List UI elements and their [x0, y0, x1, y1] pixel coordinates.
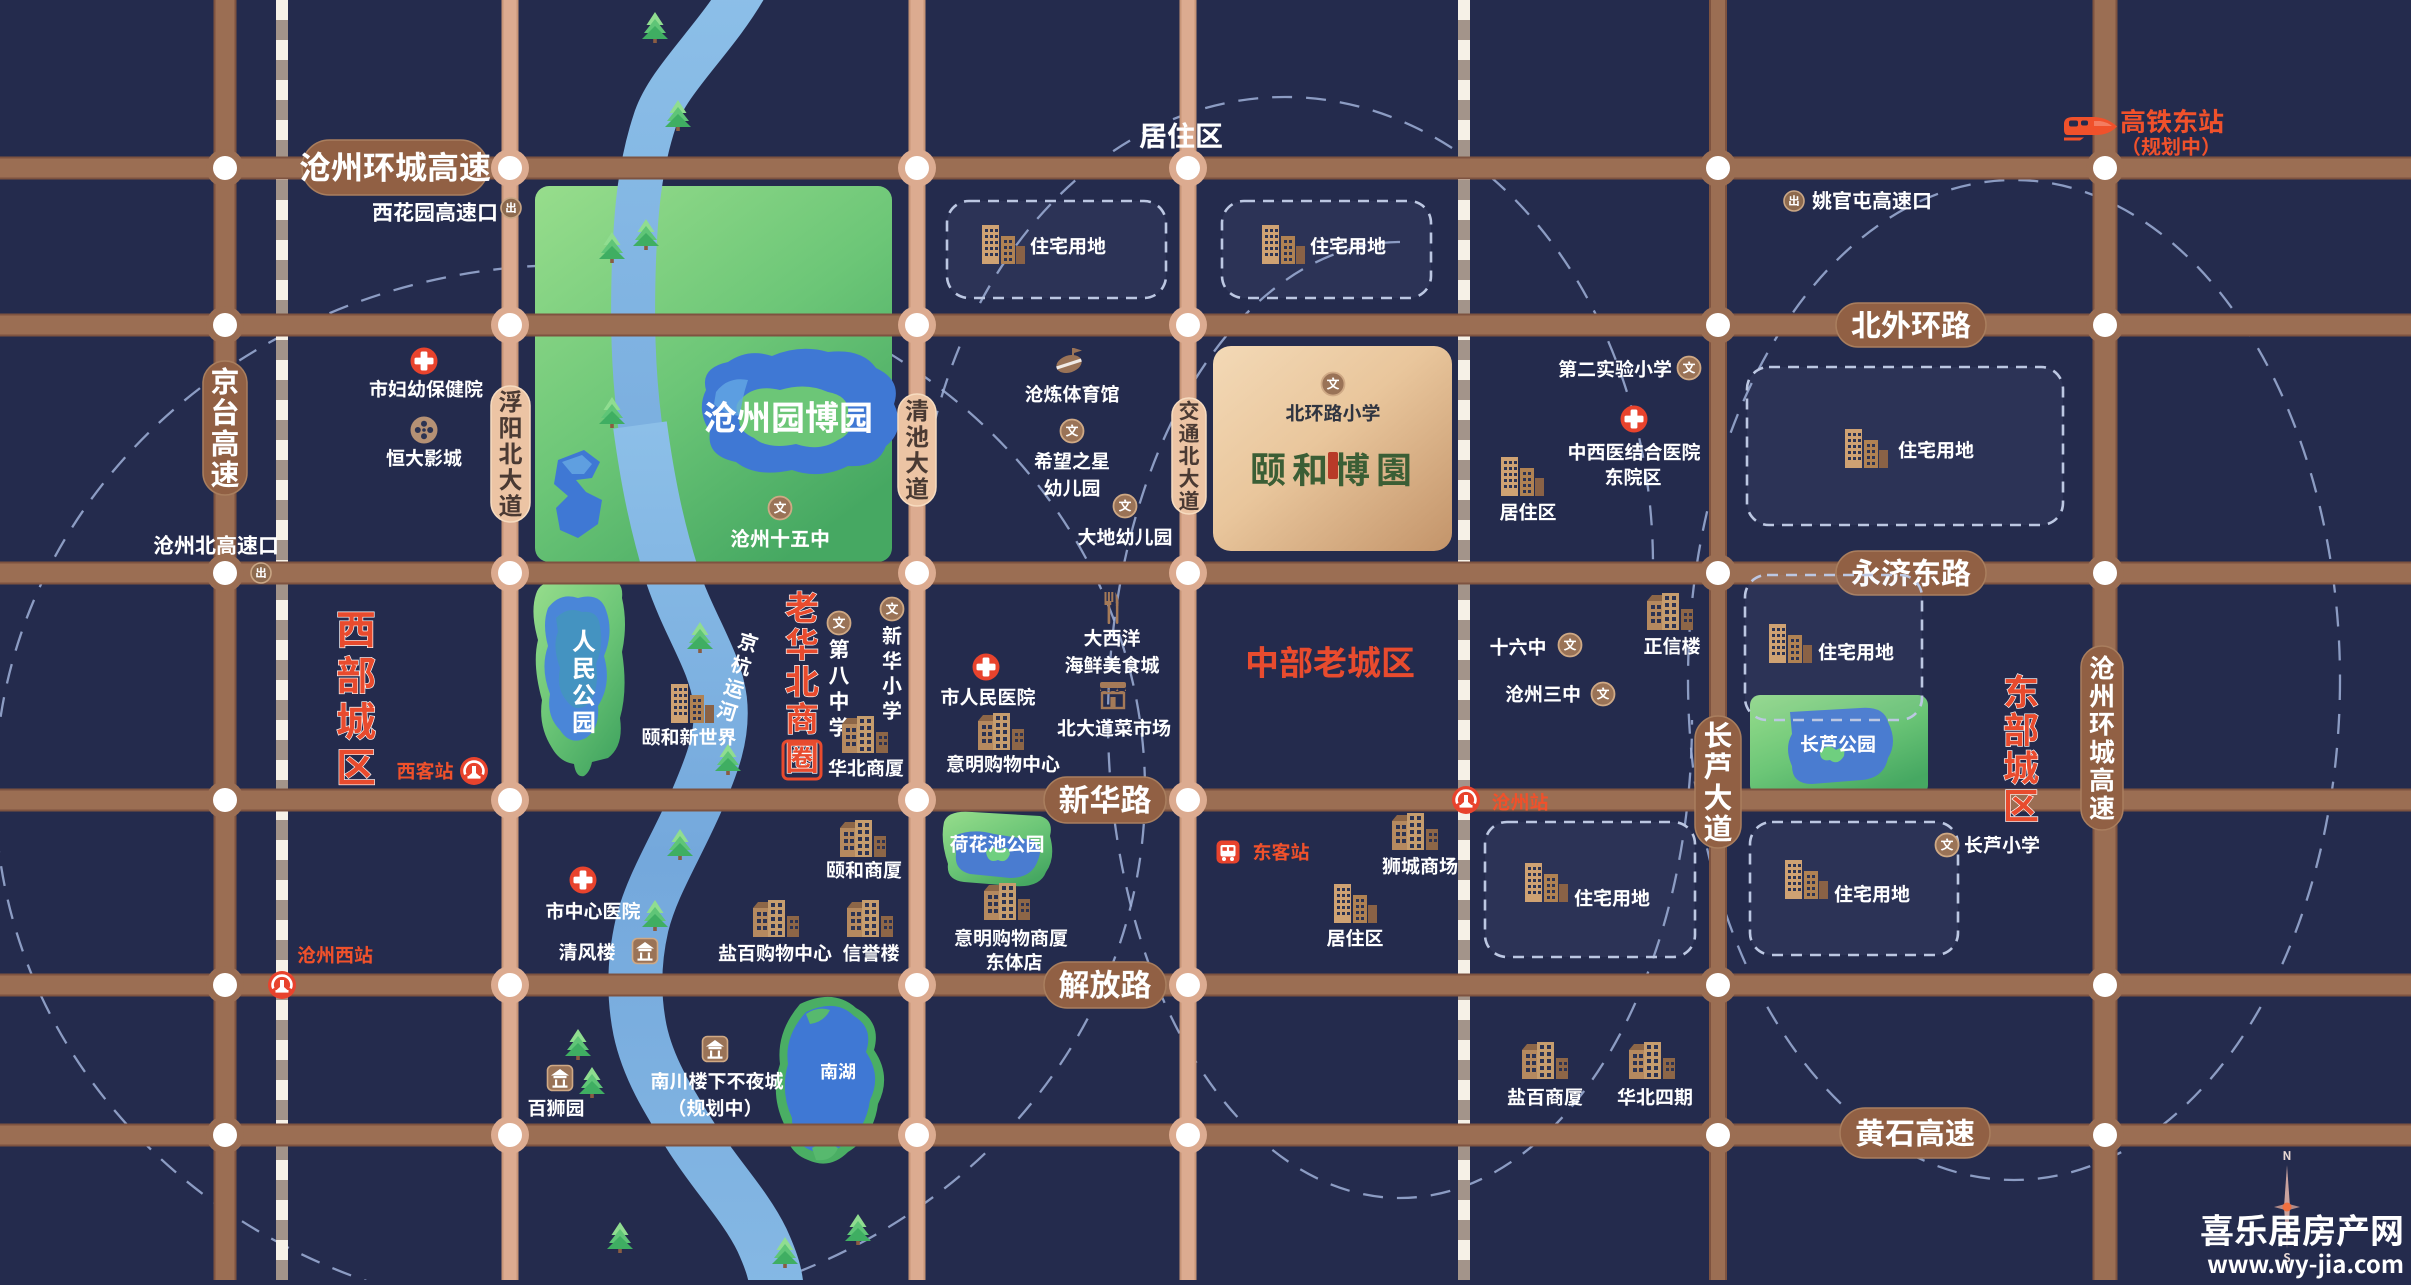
svg-text:狮城商场: 狮城商场	[1382, 852, 1458, 879]
svg-text:十六中: 十六中	[1489, 633, 1546, 660]
svg-text:盐百购物中心: 盐百购物中心	[718, 939, 832, 966]
svg-text:正信楼: 正信楼	[1643, 632, 1700, 659]
svg-text:北环路小学: 北环路小学	[1285, 399, 1380, 426]
svg-text:西客站: 西客站	[396, 757, 453, 784]
svg-text:市人民医院: 市人民医院	[940, 683, 1035, 710]
svg-text:清池大道: 清池大道	[905, 392, 929, 505]
svg-text:住宅用地: 住宅用地	[1818, 638, 1894, 665]
svg-text:姚官屯高速口: 姚官屯高速口	[1812, 185, 1932, 214]
svg-text:中西医结合医院: 中西医结合医院	[1567, 438, 1700, 465]
svg-text:沧州十五中: 沧州十五中	[730, 523, 830, 552]
svg-text:（规划中）: （规划中）	[667, 1094, 762, 1121]
svg-text:海鲜美食城: 海鲜美食城	[1064, 651, 1159, 678]
svg-text:沧州站: 沧州站	[1491, 788, 1548, 815]
svg-text:北外环路: 北外环路	[1851, 301, 1971, 345]
svg-text:东客站: 东客站	[1252, 838, 1309, 865]
svg-text:京台高速: 京台高速	[210, 359, 239, 494]
svg-text:沧炼体育馆: 沧炼体育馆	[1024, 380, 1119, 407]
svg-text:第二实验小学: 第二实验小学	[1558, 355, 1672, 382]
svg-text:意明购物中心: 意明购物中心	[946, 750, 1060, 777]
svg-text:百狮园: 百狮园	[527, 1094, 584, 1121]
svg-text:居住区: 居住区	[1139, 115, 1223, 155]
svg-text:南湖: 南湖	[820, 1058, 856, 1084]
svg-text:长芦公园: 长芦公园	[1800, 730, 1876, 757]
svg-text:颐和新世界: 颐和新世界	[641, 723, 736, 750]
svg-text:新华小学: 新华小学	[882, 620, 902, 724]
svg-text:N: N	[2283, 1147, 2292, 1164]
svg-text:颐和商厦: 颐和商厦	[826, 856, 902, 883]
svg-text:幼儿园: 幼儿园	[1043, 474, 1100, 501]
svg-text:沧州园博园: 沧州园博园	[703, 391, 873, 440]
svg-text:大地幼儿园: 大地幼儿园	[1077, 523, 1172, 550]
svg-text:交通北大道: 交通北大道	[1179, 396, 1200, 516]
svg-text:东体店: 东体店	[985, 948, 1042, 975]
svg-text:住宅用地: 住宅用地	[1834, 880, 1910, 907]
svg-text:住宅用地: 住宅用地	[1310, 232, 1386, 259]
svg-text:（规划中）: （规划中）	[2121, 131, 2221, 160]
svg-text:清风楼: 清风楼	[558, 938, 615, 965]
svg-text:东院区: 东院区	[1604, 463, 1661, 490]
svg-text:解放路: 解放路	[1059, 960, 1152, 1005]
svg-text:住宅用地: 住宅用地	[1030, 232, 1106, 259]
svg-text:南川楼下不夜城: 南川楼下不夜城	[650, 1067, 783, 1094]
svg-text:长芦小学: 长芦小学	[1964, 831, 2040, 858]
svg-text:新华路: 新华路	[1059, 775, 1152, 820]
svg-text:老华北商圈: 老华北商圈	[785, 581, 819, 780]
svg-text:市妇幼保健院: 市妇幼保健院	[369, 375, 483, 402]
svg-text:住宅用地: 住宅用地	[1898, 436, 1974, 463]
svg-text:意明购物商厦: 意明购物商厦	[954, 924, 1068, 951]
svg-text:人民公园: 人民公园	[572, 622, 596, 738]
svg-text:住宅用地: 住宅用地	[1574, 884, 1650, 911]
svg-text:东部城区: 东部城区	[2003, 664, 2039, 830]
svg-text:市中心医院: 市中心医院	[545, 897, 640, 924]
svg-text:www.wy-jia.com: www.wy-jia.com	[2207, 1245, 2404, 1280]
svg-text:荷花池公园: 荷花池公园	[949, 830, 1044, 857]
svg-text:北大道菜市场: 北大道菜市场	[1057, 714, 1171, 741]
svg-text:居住区: 居住区	[1326, 924, 1383, 951]
svg-text:中部老城区: 中部老城区	[1245, 636, 1415, 685]
svg-text:沧州三中: 沧州三中	[1505, 680, 1581, 707]
svg-text:居住区: 居住区	[1499, 498, 1556, 525]
svg-text:西部城区: 西部城区	[336, 598, 376, 794]
svg-text:希望之星: 希望之星	[1034, 447, 1110, 474]
svg-text:华北商厦: 华北商厦	[828, 754, 904, 781]
svg-text:恒大影城: 恒大影城	[386, 444, 462, 471]
svg-text:黄石高速: 黄石高速	[1855, 1109, 1975, 1153]
svg-text:浮阳北大道: 浮阳北大道	[499, 383, 523, 522]
svg-text:沧州环城高速: 沧州环城高速	[2089, 648, 2115, 825]
svg-text:盐百商厦: 盐百商厦	[1507, 1083, 1583, 1110]
svg-text:沧州北高速口: 沧州北高速口	[153, 530, 279, 560]
svg-text:信誉楼: 信誉楼	[842, 939, 899, 966]
svg-text:大西洋: 大西洋	[1083, 624, 1140, 651]
svg-text:长芦大道: 长芦大道	[1703, 713, 1732, 848]
svg-text:华北四期: 华北四期	[1617, 1083, 1693, 1110]
svg-text:沧州西站: 沧州西站	[297, 941, 373, 968]
svg-text:沧州环城高速: 沧州环城高速	[299, 143, 491, 189]
svg-text:西花园高速口: 西花园高速口	[372, 197, 498, 227]
